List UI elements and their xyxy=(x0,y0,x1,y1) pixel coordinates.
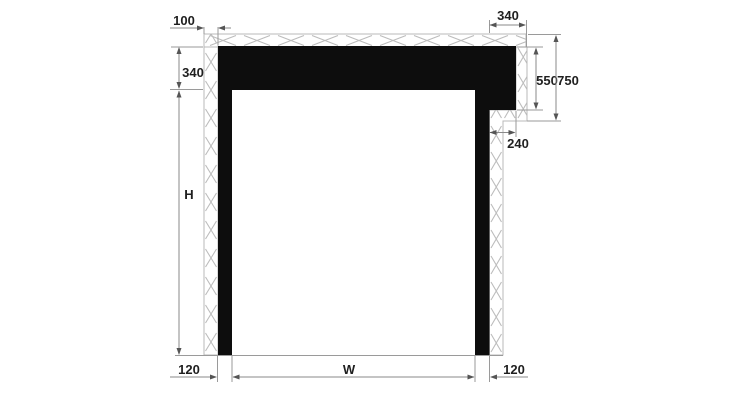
dim-label-340-right: 340 xyxy=(497,8,519,23)
dim-right-jamb-width: 120 xyxy=(490,362,528,380)
arrowhead-left-icon xyxy=(233,375,240,380)
dim-label-100: 100 xyxy=(173,13,195,28)
dim-right-detail-inner: 550 xyxy=(534,48,558,110)
dim-left-jamb-width: 120 xyxy=(170,362,217,380)
arrowhead-left-icon xyxy=(490,375,497,380)
arrowhead-down-icon xyxy=(177,348,182,355)
dim-label-h: H xyxy=(184,187,193,202)
dim-label-w: W xyxy=(343,362,356,377)
dim-right-detail-outer: 750 xyxy=(554,35,579,121)
dim-opening-height: H xyxy=(177,91,194,356)
dim-label-120-left: 120 xyxy=(178,362,200,377)
diagram-canvas: 100 340 H 340 550 xyxy=(0,0,750,400)
frame-profile xyxy=(218,46,516,355)
arrowhead-up-icon xyxy=(554,35,559,42)
arrowhead-left-icon xyxy=(490,23,497,28)
wall-strip-top xyxy=(204,34,526,47)
dim-opening-width: W xyxy=(233,362,475,380)
dim-wall-offset-top-left: 100 xyxy=(170,13,231,31)
arrowhead-right-icon xyxy=(468,375,475,380)
arrowhead-up-icon xyxy=(177,47,182,54)
arrowhead-up-icon xyxy=(177,91,182,98)
arrowhead-right-icon xyxy=(197,26,204,31)
dim-label-550: 550 xyxy=(536,73,558,88)
arrowhead-right-icon xyxy=(519,23,526,28)
dim-head-height: 340 xyxy=(177,47,204,89)
arrowhead-down-icon xyxy=(534,103,539,110)
arrowhead-up-icon xyxy=(534,48,539,55)
arrowhead-down-icon xyxy=(177,82,182,89)
dim-label-240: 240 xyxy=(507,136,529,151)
dim-head-overlap-top-right: 340 xyxy=(490,8,527,28)
dim-label-120-right: 120 xyxy=(503,362,525,377)
dim-label-340-left: 340 xyxy=(182,65,204,80)
arrowhead-down-icon xyxy=(554,114,559,121)
arrowhead-right-icon xyxy=(210,375,217,380)
frame-section-diagram: 100 340 H 340 550 xyxy=(0,0,750,400)
wall-strip-left xyxy=(204,34,218,355)
arrowhead-left-icon xyxy=(218,26,225,31)
dim-label-750: 750 xyxy=(557,73,579,88)
arrowhead-right-icon xyxy=(509,130,516,135)
